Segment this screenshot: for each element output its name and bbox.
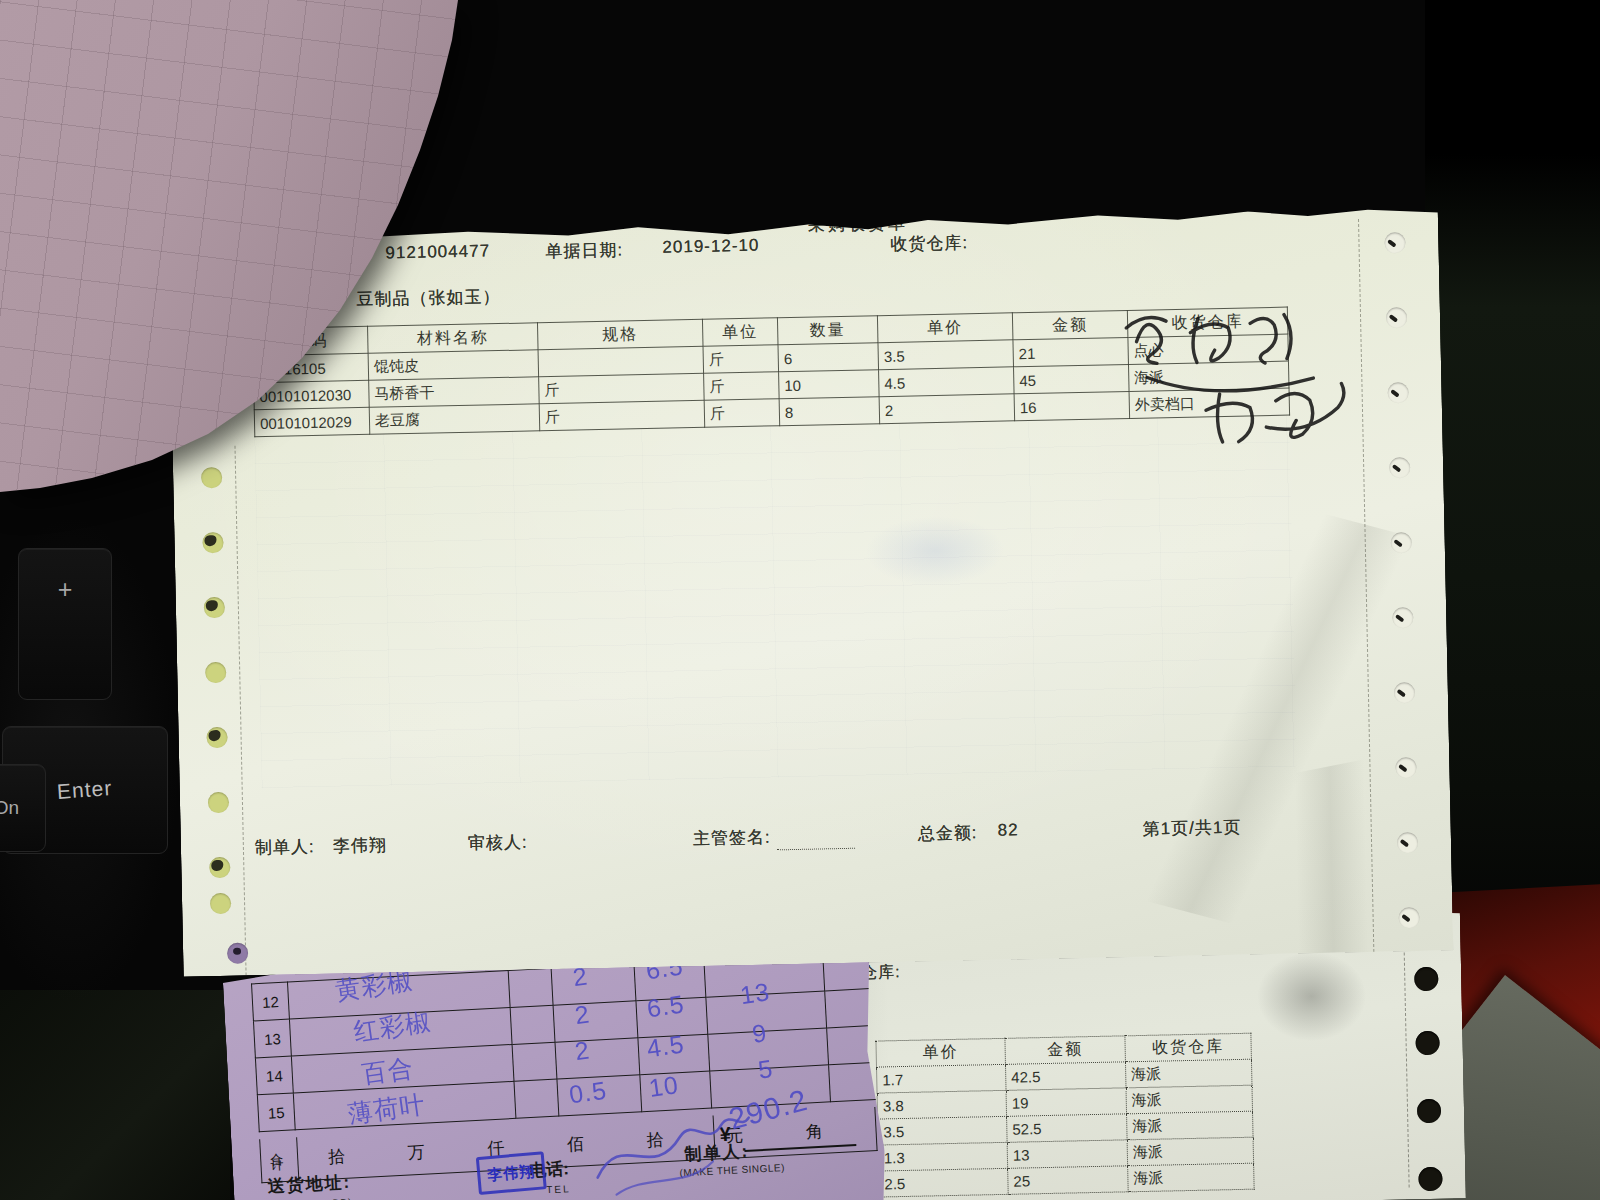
feed-hole <box>1387 382 1408 403</box>
enter-key-label: Enter <box>57 776 114 804</box>
col-header: 规格 <box>537 319 703 349</box>
feed-hole <box>204 597 225 618</box>
address-label: 送货地址: <box>267 1171 352 1198</box>
cell-spec: 斤 <box>539 400 705 430</box>
feed-hole <box>208 792 229 813</box>
handwritten-qty: 0.5 <box>567 1076 608 1110</box>
cell-warehouse: 海派 <box>1127 1111 1254 1140</box>
plus-key-label: + <box>58 575 73 603</box>
name-stamp: 李伟翔 <box>476 1151 547 1195</box>
cell-qty: 6 <box>778 343 879 372</box>
cell-warehouse: 海派 <box>1128 1163 1255 1192</box>
cell-price: 3.5 <box>878 340 1014 370</box>
cell-qty: 10 <box>779 370 880 399</box>
page2-price-table: 单价 金额 收货仓库 1.7 42.5 海派 3.8 19 海派 3.5 52.… <box>875 1033 1254 1198</box>
feed-hole <box>209 857 230 878</box>
cell-price: 3.5 <box>878 1116 1008 1145</box>
pink-grid-paper <box>0 0 520 500</box>
total-label: 合计 <box>265 1142 283 1153</box>
on-key: On <box>0 764 46 852</box>
dark-background-right <box>1425 0 1600 960</box>
col-header: 收货仓库 <box>1125 1033 1252 1062</box>
cell-qty: 8 <box>779 397 880 426</box>
cell-amount: 42.5 <box>1005 1062 1126 1091</box>
row-number: 15 <box>257 1093 295 1132</box>
maker-name: 李伟翔 <box>333 834 387 858</box>
feed-hole <box>1417 1099 1441 1123</box>
col-header: 单价 <box>876 1038 1006 1067</box>
cell-unit: 斤 <box>704 372 780 401</box>
date-value: 2019-12-10 <box>662 236 759 258</box>
feed-hole <box>1414 967 1438 991</box>
perforation-line <box>234 446 246 976</box>
on-key-label: On <box>0 797 19 819</box>
cell-amount: 16 <box>1014 391 1130 420</box>
row-number: 14 <box>255 1056 293 1095</box>
auditor-label: 审核人: <box>468 831 528 855</box>
cell-price: 2 <box>879 394 1015 424</box>
cell-amount: 19 <box>1006 1088 1127 1117</box>
cell-warehouse: 海派 <box>1127 1137 1254 1166</box>
col-header: 金额 <box>1005 1036 1126 1065</box>
cell-price: 1.7 <box>877 1064 1007 1093</box>
feed-hole <box>202 532 223 553</box>
cell-unit: 斤 <box>703 345 779 374</box>
cell-amount: 45 <box>1014 364 1130 393</box>
feed-hole <box>210 893 231 914</box>
date-label: 单据日期: <box>545 238 623 263</box>
cell-price: 2.5 <box>879 1168 1009 1197</box>
col-header: 单位 <box>702 318 778 347</box>
handwritten-signature-blue <box>582 1107 756 1200</box>
perforation-line <box>1403 937 1409 1187</box>
dark-background-bottom-left <box>0 990 230 1200</box>
cell-amount: 52.5 <box>1007 1114 1128 1143</box>
numpad-plus-key: + <box>18 548 112 700</box>
handwritten-amount: 13 <box>738 977 772 1010</box>
cell-warehouse: 海派 <box>1126 1085 1253 1114</box>
handwritten-price: 10 <box>647 1070 681 1103</box>
col-header: 数量 <box>777 316 878 345</box>
handwritten-price: 6.5 <box>645 989 686 1023</box>
page-indicator: 第1页/共1页 <box>1142 816 1241 841</box>
cell-price: 3.8 <box>877 1090 1007 1119</box>
feed-hole <box>1386 307 1407 328</box>
photo-scene: + Enter On 采购收货单 仓库: 单价 金额 收货仓库 1.7 42.5… <box>0 0 1600 1200</box>
row-number: 13 <box>253 1019 291 1058</box>
cell-price: 1.3 <box>878 1142 1008 1171</box>
phone-sublabel: TEL <box>546 1183 571 1195</box>
cell-amount: 25 <box>1008 1166 1129 1195</box>
row-number: 12 <box>252 982 290 1021</box>
cell-amount: 21 <box>1013 337 1129 366</box>
cell-amount: 13 <box>1007 1140 1128 1169</box>
feed-hole <box>205 662 226 683</box>
smudge-stain <box>1256 950 1368 1042</box>
pink-grid-paper-surface <box>0 0 520 500</box>
feed-hole <box>1415 1031 1439 1055</box>
total-label: 总金额: <box>918 821 978 845</box>
handwritten-price: 4.5 <box>645 1029 686 1063</box>
feed-hole <box>1389 457 1410 478</box>
cell-warehouse: 海派 <box>1125 1059 1252 1088</box>
feed-hole <box>206 727 227 748</box>
warehouse-label: 收货仓库: <box>890 231 968 256</box>
supervisor-label: 主管签名: <box>693 826 771 851</box>
total-value: 82 <box>998 820 1019 840</box>
cell-price: 4.5 <box>879 367 1015 397</box>
col-header: 金额 <box>1012 310 1128 339</box>
cell-spec <box>538 346 704 376</box>
col-header: 单价 <box>877 313 1013 343</box>
signature-line <box>777 848 855 851</box>
cell-spec: 斤 <box>539 373 705 403</box>
feed-hole <box>1384 232 1405 253</box>
maker-label: 制单人: <box>255 835 315 859</box>
handwritten-signature-black <box>1118 293 1362 473</box>
feed-hole <box>1418 1167 1442 1191</box>
cell-unit: 斤 <box>704 399 780 428</box>
